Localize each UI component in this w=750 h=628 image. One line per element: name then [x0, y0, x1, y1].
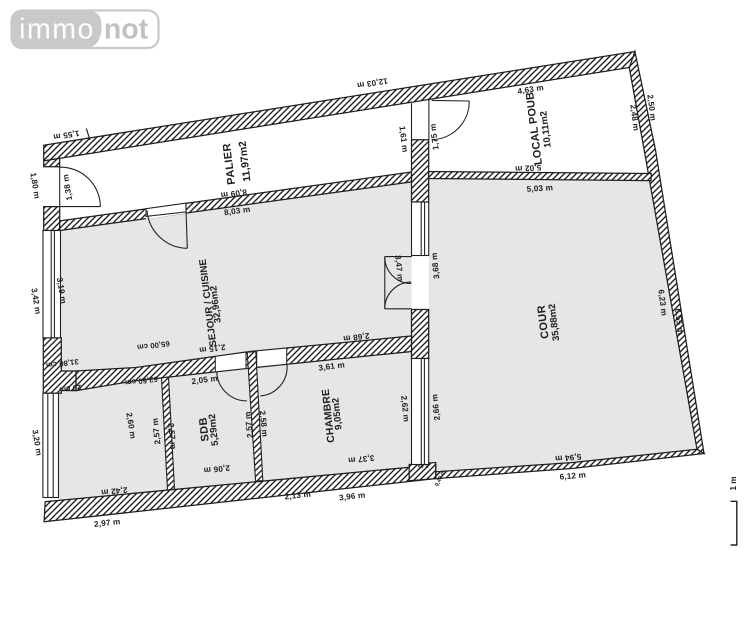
svg-text:1 m: 1 m	[729, 476, 738, 490]
svg-text:not: not	[104, 14, 149, 46]
svg-text:immo: immo	[19, 14, 95, 46]
svg-text:5,03 m: 5,03 m	[526, 183, 553, 194]
svg-text:5,02 m: 5,02 m	[515, 163, 542, 174]
svg-text:0,45: 0,45	[417, 462, 428, 469]
